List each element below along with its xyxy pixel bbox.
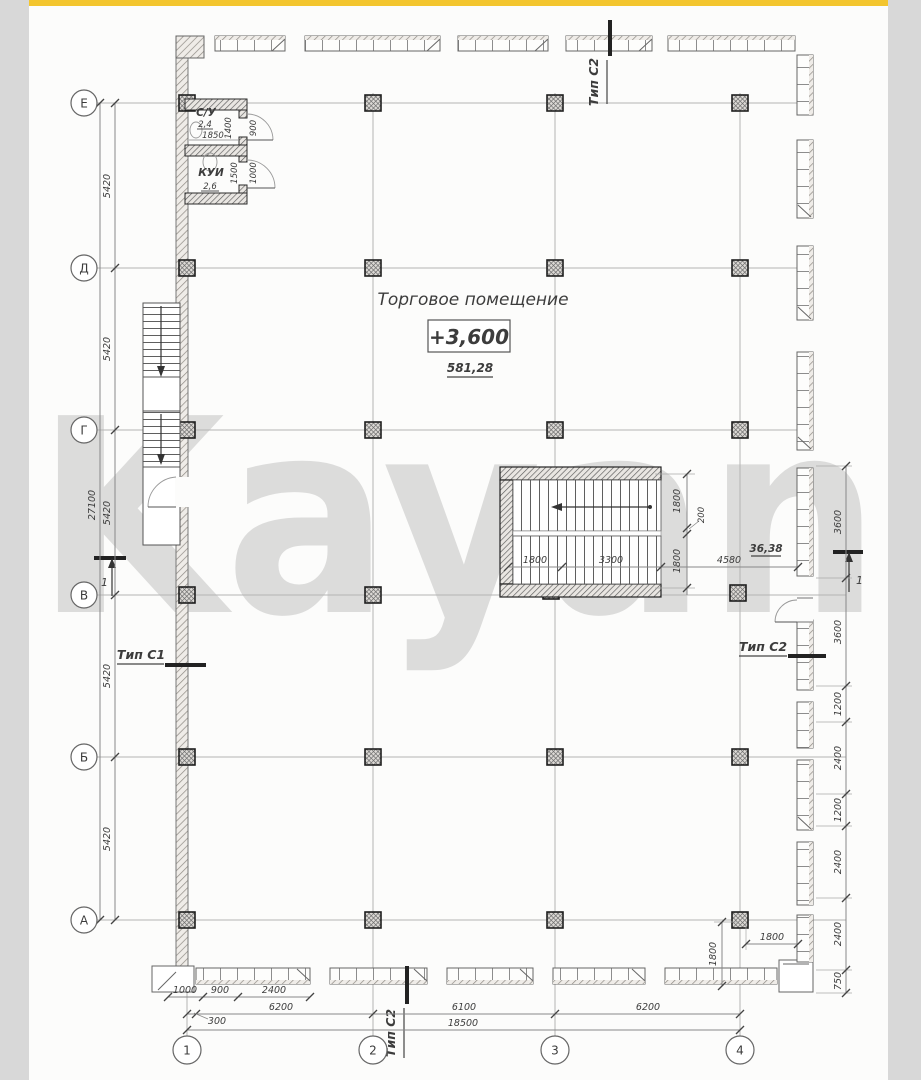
stair-dim-bottom: 1800 [672,549,683,573]
dim-right-6: 2400 [833,850,844,874]
stair-dim-small: 200 [697,507,707,523]
dim-left-overall: 27100 [87,490,98,520]
axis-col-4: 4 [736,1044,744,1058]
type-c2-marker-right: Тип С2 [739,639,787,654]
hall-name: Торговое помещение [377,290,568,310]
type-c2-marker-top: Тип С2 [586,58,601,106]
right-exterior-wall [797,55,813,962]
stair-dim-top: 1800 [672,489,683,513]
wc-width-dim: 1850 [202,131,224,141]
dim-left-seg-2: 5420 [102,337,113,361]
dim-bottom-span-3: 6200 [636,1002,660,1013]
dim-corner4-vertical: 1800 [708,942,719,966]
dim-right-2: 3600 [833,620,844,644]
dim-right-3: 1200 [833,692,844,716]
dim-left-seg-1: 5420 [102,174,113,198]
top-accent-bar [29,0,888,6]
dim-right-5: 1200 [833,798,844,822]
axis-row-E: Е [80,97,88,111]
stair-dim-mid: 3300 [599,555,623,566]
stair-dim-right: 4580 [717,555,741,566]
dim-bottom-900: 900 [211,985,229,996]
stair-dim-left: 1800 [523,555,547,566]
axis-row-B: Б [80,751,88,765]
axis-row-D: Д [79,262,88,276]
type-c1-marker-left: Тип С1 [117,647,165,662]
wc-room-label: С/У [196,107,217,119]
wc-door-dim: 900 [249,120,259,136]
dim-left-seg-3: 5420 [102,501,113,525]
axis-col-1: 1 [183,1044,191,1058]
kui-door-dim: 1000 [249,162,259,184]
dim-right-4: 2400 [833,746,844,770]
section-number-left: 1 [101,576,108,589]
stairwell-area-label: 36,38 [749,543,782,555]
dim-bottom-span-2: 6100 [452,1002,476,1013]
dim-corner4-horizontal: 1800 [760,932,784,943]
dim-right-7: 2400 [833,922,844,946]
dim-bottom-offset: 300 [208,1016,226,1027]
axis-row-G: Г [80,424,87,438]
dim-left-seg-5: 5420 [102,827,113,851]
axis-col-2: 2 [369,1044,377,1058]
axis-col-3: 3 [551,1044,559,1058]
floor-plan-screenshot: Kayan [0,0,921,1080]
dim-right-8: 750 [833,972,844,990]
dim-bottom-1000: 1000 [173,985,197,996]
dim-bottom-span-1: 6200 [269,1002,293,1013]
central-stairwell [500,467,661,597]
dim-left-seg-4: 5420 [102,664,113,688]
level-mark: +3,600 [429,325,509,349]
hall-area: 581,28 [447,361,493,375]
wc-depth-dim: 1400 [224,117,234,139]
axis-row-V: В [80,589,88,603]
dim-bottom-overall: 18500 [448,1018,478,1029]
floor-plan-drawing: Kayan [0,0,921,1080]
dim-bottom-2400: 2400 [262,985,286,996]
kui-depth-dim: 1500 [230,162,240,184]
kui-room-label: КУИ [198,167,224,179]
dim-right-1: 3600 [833,510,844,534]
section-number-right: 1 [856,574,863,587]
axis-row-A: А [80,914,89,928]
